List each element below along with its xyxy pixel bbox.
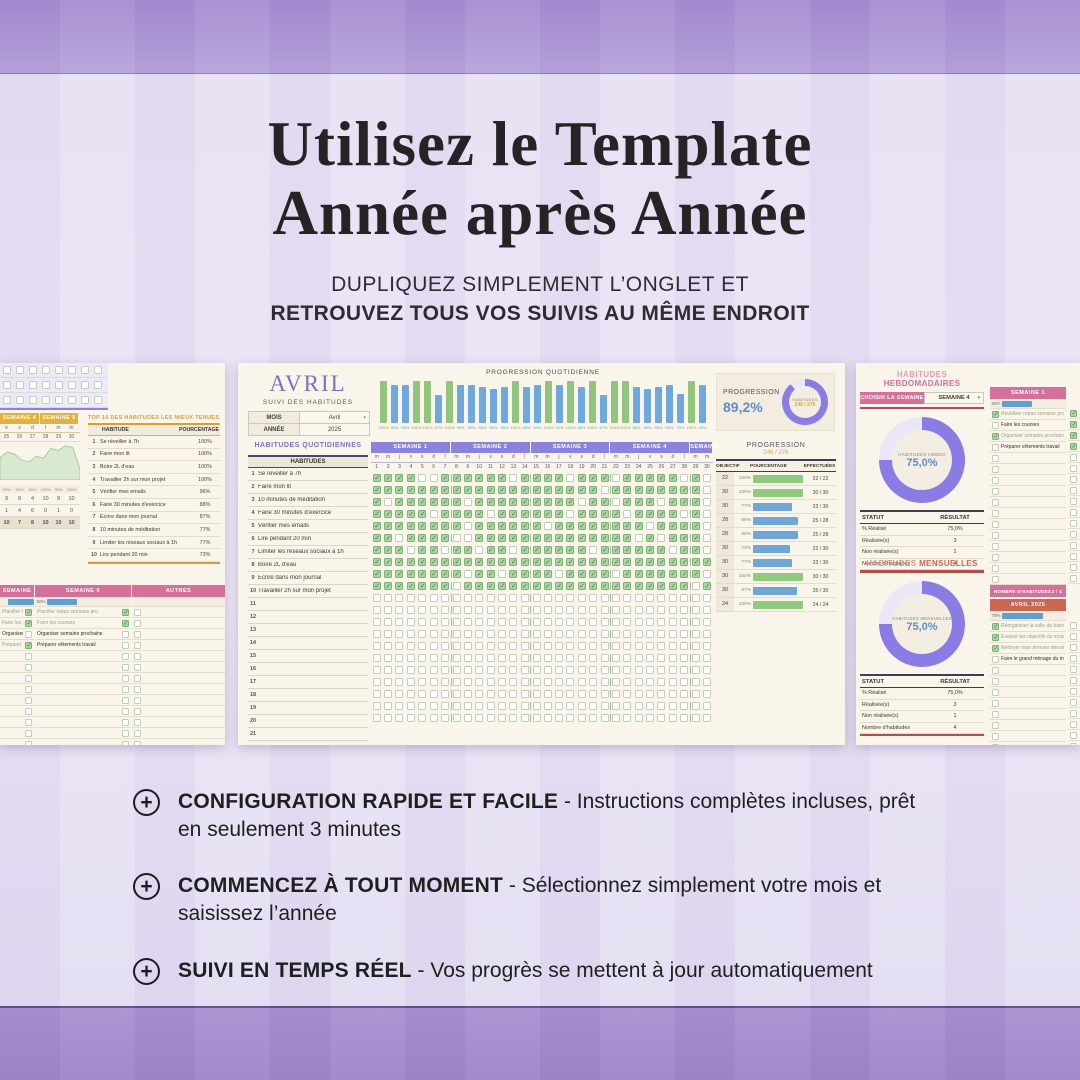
habit-checkbox[interactable] bbox=[669, 618, 677, 626]
habit-checkbox[interactable] bbox=[533, 534, 541, 542]
habit-checkbox[interactable] bbox=[589, 642, 597, 650]
habit-checkbox[interactable] bbox=[646, 474, 654, 482]
habit-checkbox[interactable] bbox=[669, 474, 677, 482]
habit-checkbox[interactable] bbox=[521, 594, 529, 602]
habit-checkbox[interactable] bbox=[384, 690, 392, 698]
habit-checkbox[interactable] bbox=[475, 690, 483, 698]
habit-checkbox[interactable] bbox=[453, 510, 461, 518]
habit-checkbox[interactable] bbox=[612, 522, 620, 530]
habit-checkbox[interactable] bbox=[373, 570, 381, 578]
habit-checkbox[interactable] bbox=[669, 702, 677, 710]
habit-checkbox[interactable] bbox=[635, 582, 643, 590]
habit-checkbox[interactable] bbox=[94, 381, 102, 389]
habit-checkbox[interactable] bbox=[373, 582, 381, 590]
habit-checkbox[interactable] bbox=[566, 594, 574, 602]
habit-checkbox[interactable] bbox=[418, 498, 426, 506]
habit-checkbox[interactable] bbox=[453, 594, 461, 602]
habit-checkbox[interactable] bbox=[487, 594, 495, 602]
habit-checkbox[interactable] bbox=[384, 474, 392, 482]
habit-checkbox[interactable] bbox=[498, 594, 506, 602]
habit-checkbox[interactable] bbox=[395, 678, 403, 686]
habit-checkbox[interactable] bbox=[453, 582, 461, 590]
habit-checkbox[interactable] bbox=[441, 498, 449, 506]
habit-checkbox[interactable] bbox=[555, 510, 563, 518]
habit-checkbox[interactable] bbox=[487, 702, 495, 710]
item-checkbox[interactable] bbox=[1070, 465, 1077, 472]
habit-checkbox[interactable] bbox=[680, 678, 688, 686]
habit-checkbox[interactable] bbox=[498, 714, 506, 722]
habit-checkbox[interactable] bbox=[384, 558, 392, 566]
habit-checkbox[interactable] bbox=[544, 474, 552, 482]
habit-checkbox[interactable] bbox=[509, 594, 517, 602]
habit-checkbox[interactable] bbox=[464, 642, 472, 650]
habit-checkbox[interactable] bbox=[623, 606, 631, 614]
habit-checkbox[interactable] bbox=[68, 381, 76, 389]
habit-checkbox[interactable] bbox=[533, 606, 541, 614]
item-checkbox[interactable] bbox=[134, 653, 141, 660]
habit-checkbox[interactable] bbox=[441, 546, 449, 554]
habit-checkbox[interactable] bbox=[601, 618, 609, 626]
habit-checkbox[interactable] bbox=[418, 486, 426, 494]
habit-checkbox[interactable] bbox=[453, 702, 461, 710]
habit-checkbox[interactable] bbox=[487, 474, 495, 482]
habit-checkbox[interactable] bbox=[680, 498, 688, 506]
habit-checkbox[interactable] bbox=[657, 654, 665, 662]
item-checkbox[interactable] bbox=[992, 733, 999, 740]
habit-checkbox[interactable] bbox=[657, 570, 665, 578]
habit-checkbox[interactable] bbox=[623, 522, 631, 530]
habit-checkbox[interactable] bbox=[533, 510, 541, 518]
habit-checkbox[interactable] bbox=[635, 498, 643, 506]
habit-checkbox[interactable] bbox=[533, 474, 541, 482]
habit-checkbox[interactable] bbox=[498, 606, 506, 614]
item-checkbox[interactable] bbox=[992, 510, 999, 517]
habit-checkbox[interactable] bbox=[566, 570, 574, 578]
habit-checkbox[interactable] bbox=[464, 582, 472, 590]
habit-checkbox[interactable] bbox=[555, 558, 563, 566]
habit-checkbox[interactable] bbox=[578, 714, 586, 722]
habit-checkbox[interactable] bbox=[566, 666, 574, 674]
habit-checkbox[interactable] bbox=[487, 606, 495, 614]
habit-checkbox[interactable] bbox=[692, 654, 700, 662]
habit-checkbox[interactable] bbox=[453, 546, 461, 554]
habit-checkbox[interactable] bbox=[657, 690, 665, 698]
item-checkbox[interactable] bbox=[992, 488, 999, 495]
habit-checkbox[interactable] bbox=[589, 510, 597, 518]
habit-checkbox[interactable] bbox=[464, 678, 472, 686]
habit-checkbox[interactable] bbox=[418, 654, 426, 662]
habit-checkbox[interactable] bbox=[623, 630, 631, 638]
habit-checkbox[interactable] bbox=[657, 534, 665, 542]
habit-checkbox[interactable] bbox=[589, 678, 597, 686]
habit-checkbox[interactable] bbox=[395, 558, 403, 566]
habit-checkbox[interactable] bbox=[703, 714, 711, 722]
habit-checkbox[interactable] bbox=[589, 534, 597, 542]
habit-checkbox[interactable] bbox=[544, 486, 552, 494]
habit-checkbox[interactable] bbox=[589, 498, 597, 506]
habit-checkbox[interactable] bbox=[475, 594, 483, 602]
habit-checkbox[interactable] bbox=[384, 582, 392, 590]
habit-checkbox[interactable] bbox=[464, 534, 472, 542]
habit-checkbox[interactable] bbox=[646, 498, 654, 506]
habit-checkbox[interactable] bbox=[635, 654, 643, 662]
habit-checkbox[interactable] bbox=[566, 474, 574, 482]
habit-checkbox[interactable] bbox=[384, 606, 392, 614]
habit-checkbox[interactable] bbox=[589, 702, 597, 710]
item-checkbox[interactable] bbox=[1070, 553, 1077, 560]
habit-checkbox[interactable] bbox=[509, 558, 517, 566]
habit-checkbox[interactable] bbox=[498, 486, 506, 494]
habit-checkbox[interactable] bbox=[578, 606, 586, 614]
habit-checkbox[interactable] bbox=[703, 546, 711, 554]
habit-checkbox[interactable] bbox=[395, 666, 403, 674]
habit-checkbox[interactable] bbox=[521, 522, 529, 530]
habit-checkbox[interactable] bbox=[68, 396, 76, 404]
habit-checkbox[interactable] bbox=[42, 381, 50, 389]
habit-checkbox[interactable] bbox=[680, 606, 688, 614]
habit-checkbox[interactable] bbox=[646, 702, 654, 710]
habit-checkbox[interactable] bbox=[441, 594, 449, 602]
choose-week-button[interactable]: CHOISIR LA SEMAINE bbox=[860, 392, 924, 404]
habit-checkbox[interactable] bbox=[464, 702, 472, 710]
item-checkbox[interactable] bbox=[122, 730, 129, 737]
habit-checkbox[interactable] bbox=[509, 606, 517, 614]
habit-checkbox[interactable] bbox=[498, 546, 506, 554]
item-checkbox[interactable] bbox=[992, 744, 999, 746]
habit-checkbox[interactable] bbox=[384, 594, 392, 602]
habit-checkbox[interactable] bbox=[566, 582, 574, 590]
habit-checkbox[interactable] bbox=[589, 546, 597, 554]
item-checkbox[interactable] bbox=[134, 675, 141, 682]
habit-checkbox[interactable] bbox=[692, 546, 700, 554]
habit-checkbox[interactable] bbox=[589, 606, 597, 614]
item-checkbox[interactable] bbox=[992, 532, 999, 539]
habit-checkbox[interactable] bbox=[680, 594, 688, 602]
habit-checkbox[interactable] bbox=[692, 618, 700, 626]
item-checkbox[interactable] bbox=[1070, 531, 1077, 538]
item-checkbox[interactable] bbox=[134, 664, 141, 671]
habit-checkbox[interactable] bbox=[578, 630, 586, 638]
habit-checkbox[interactable] bbox=[373, 498, 381, 506]
habit-checkbox[interactable] bbox=[635, 558, 643, 566]
habit-checkbox[interactable] bbox=[395, 570, 403, 578]
item-checkbox[interactable] bbox=[1070, 432, 1077, 439]
habit-checkbox[interactable] bbox=[430, 570, 438, 578]
habit-checkbox[interactable] bbox=[487, 570, 495, 578]
habit-checkbox[interactable] bbox=[3, 396, 11, 404]
habit-checkbox[interactable] bbox=[544, 510, 552, 518]
habit-checkbox[interactable] bbox=[623, 678, 631, 686]
habit-checkbox[interactable] bbox=[407, 534, 415, 542]
habit-checkbox[interactable] bbox=[657, 714, 665, 722]
habit-checkbox[interactable] bbox=[430, 618, 438, 626]
habit-checkbox[interactable] bbox=[533, 594, 541, 602]
habit-checkbox[interactable] bbox=[453, 618, 461, 626]
habit-checkbox[interactable] bbox=[623, 702, 631, 710]
item-checkbox[interactable] bbox=[122, 620, 129, 627]
habit-checkbox[interactable] bbox=[533, 690, 541, 698]
habit-checkbox[interactable] bbox=[509, 618, 517, 626]
habit-checkbox[interactable] bbox=[680, 714, 688, 722]
habit-checkbox[interactable] bbox=[533, 498, 541, 506]
habit-checkbox[interactable] bbox=[430, 522, 438, 530]
habit-checkbox[interactable] bbox=[509, 702, 517, 710]
habit-checkbox[interactable] bbox=[441, 666, 449, 674]
habit-checkbox[interactable] bbox=[430, 474, 438, 482]
habit-checkbox[interactable] bbox=[692, 642, 700, 650]
habit-checkbox[interactable] bbox=[692, 558, 700, 566]
habit-checkbox[interactable] bbox=[453, 498, 461, 506]
habit-checkbox[interactable] bbox=[533, 702, 541, 710]
habit-checkbox[interactable] bbox=[635, 486, 643, 494]
habit-checkbox[interactable] bbox=[601, 486, 609, 494]
habit-checkbox[interactable] bbox=[81, 396, 89, 404]
habit-checkbox[interactable] bbox=[680, 558, 688, 566]
habit-checkbox[interactable] bbox=[55, 381, 63, 389]
habit-checkbox[interactable] bbox=[475, 642, 483, 650]
habit-checkbox[interactable] bbox=[464, 510, 472, 518]
habit-checkbox[interactable] bbox=[657, 642, 665, 650]
habit-checkbox[interactable] bbox=[601, 594, 609, 602]
habit-checkbox[interactable] bbox=[509, 642, 517, 650]
habit-checkbox[interactable] bbox=[555, 570, 563, 578]
habit-checkbox[interactable] bbox=[430, 678, 438, 686]
habit-checkbox[interactable] bbox=[692, 690, 700, 698]
habit-checkbox[interactable] bbox=[555, 642, 563, 650]
habit-checkbox[interactable] bbox=[578, 666, 586, 674]
habit-checkbox[interactable] bbox=[680, 534, 688, 542]
habit-checkbox[interactable] bbox=[475, 570, 483, 578]
habit-checkbox[interactable] bbox=[475, 654, 483, 662]
habit-checkbox[interactable] bbox=[601, 606, 609, 614]
habit-checkbox[interactable] bbox=[555, 486, 563, 494]
habit-checkbox[interactable] bbox=[498, 618, 506, 626]
habit-checkbox[interactable] bbox=[612, 534, 620, 542]
habit-checkbox[interactable] bbox=[418, 546, 426, 554]
habit-checkbox[interactable] bbox=[612, 558, 620, 566]
habit-checkbox[interactable] bbox=[680, 702, 688, 710]
habit-checkbox[interactable] bbox=[601, 498, 609, 506]
habit-checkbox[interactable] bbox=[464, 630, 472, 638]
habit-checkbox[interactable] bbox=[635, 570, 643, 578]
item-checkbox[interactable] bbox=[992, 565, 999, 572]
habit-checkbox[interactable] bbox=[566, 678, 574, 686]
habit-checkbox[interactable] bbox=[509, 666, 517, 674]
habit-checkbox[interactable] bbox=[544, 702, 552, 710]
habit-checkbox[interactable] bbox=[487, 546, 495, 554]
habit-checkbox[interactable] bbox=[475, 618, 483, 626]
habit-checkbox[interactable] bbox=[441, 570, 449, 578]
habit-checkbox[interactable] bbox=[509, 690, 517, 698]
habit-checkbox[interactable] bbox=[441, 522, 449, 530]
habit-checkbox[interactable] bbox=[487, 510, 495, 518]
habit-checkbox[interactable] bbox=[453, 666, 461, 674]
habit-checkbox[interactable] bbox=[407, 510, 415, 518]
habit-checkbox[interactable] bbox=[521, 714, 529, 722]
habit-checkbox[interactable] bbox=[589, 558, 597, 566]
habit-checkbox[interactable] bbox=[555, 678, 563, 686]
item-checkbox[interactable] bbox=[134, 609, 141, 616]
habit-checkbox[interactable] bbox=[544, 594, 552, 602]
item-checkbox[interactable] bbox=[134, 631, 141, 638]
habit-checkbox[interactable] bbox=[680, 666, 688, 674]
habit-checkbox[interactable] bbox=[487, 690, 495, 698]
item-checkbox[interactable] bbox=[25, 664, 32, 671]
habit-checkbox[interactable] bbox=[498, 690, 506, 698]
habit-checkbox[interactable] bbox=[612, 486, 620, 494]
habit-checkbox[interactable] bbox=[646, 714, 654, 722]
habit-checkbox[interactable] bbox=[441, 678, 449, 686]
habit-checkbox[interactable] bbox=[475, 702, 483, 710]
annee-input[interactable]: 2025 bbox=[300, 424, 369, 435]
item-checkbox[interactable] bbox=[1070, 542, 1077, 549]
habit-checkbox[interactable] bbox=[680, 570, 688, 578]
habit-checkbox[interactable] bbox=[441, 582, 449, 590]
habit-checkbox[interactable] bbox=[544, 690, 552, 698]
habit-checkbox[interactable] bbox=[612, 606, 620, 614]
habit-checkbox[interactable] bbox=[533, 570, 541, 578]
habit-checkbox[interactable] bbox=[544, 498, 552, 506]
habit-checkbox[interactable] bbox=[544, 642, 552, 650]
habit-checkbox[interactable] bbox=[646, 594, 654, 602]
item-checkbox[interactable] bbox=[25, 642, 32, 649]
habit-checkbox[interactable] bbox=[692, 570, 700, 578]
habit-checkbox[interactable] bbox=[418, 594, 426, 602]
item-checkbox[interactable] bbox=[134, 741, 141, 746]
habit-checkbox[interactable] bbox=[16, 396, 24, 404]
habit-checkbox[interactable] bbox=[498, 498, 506, 506]
habit-checkbox[interactable] bbox=[521, 690, 529, 698]
habit-checkbox[interactable] bbox=[498, 642, 506, 650]
habit-checkbox[interactable] bbox=[521, 618, 529, 626]
habit-checkbox[interactable] bbox=[669, 510, 677, 518]
item-checkbox[interactable] bbox=[122, 686, 129, 693]
habit-checkbox[interactable] bbox=[669, 558, 677, 566]
habit-checkbox[interactable] bbox=[589, 618, 597, 626]
habit-checkbox[interactable] bbox=[29, 366, 37, 374]
habit-checkbox[interactable] bbox=[384, 642, 392, 650]
habit-checkbox[interactable] bbox=[544, 558, 552, 566]
habit-checkbox[interactable] bbox=[487, 486, 495, 494]
habit-checkbox[interactable] bbox=[646, 666, 654, 674]
habit-checkbox[interactable] bbox=[680, 582, 688, 590]
habit-checkbox[interactable] bbox=[555, 534, 563, 542]
habit-checkbox[interactable] bbox=[384, 522, 392, 530]
item-checkbox[interactable] bbox=[122, 631, 129, 638]
habit-checkbox[interactable] bbox=[441, 510, 449, 518]
habit-checkbox[interactable] bbox=[407, 582, 415, 590]
habit-checkbox[interactable] bbox=[646, 522, 654, 530]
item-checkbox[interactable] bbox=[992, 711, 999, 718]
item-checkbox[interactable] bbox=[1070, 688, 1077, 695]
item-checkbox[interactable] bbox=[134, 697, 141, 704]
habit-checkbox[interactable] bbox=[521, 546, 529, 554]
habit-checkbox[interactable] bbox=[646, 534, 654, 542]
habit-checkbox[interactable] bbox=[555, 630, 563, 638]
habit-checkbox[interactable] bbox=[498, 654, 506, 662]
habit-checkbox[interactable] bbox=[601, 558, 609, 566]
habit-checkbox[interactable] bbox=[692, 582, 700, 590]
item-checkbox[interactable] bbox=[122, 741, 129, 746]
habit-checkbox[interactable] bbox=[464, 498, 472, 506]
habit-checkbox[interactable] bbox=[623, 558, 631, 566]
habit-checkbox[interactable] bbox=[601, 474, 609, 482]
habit-checkbox[interactable] bbox=[384, 678, 392, 686]
habit-checkbox[interactable] bbox=[646, 606, 654, 614]
habit-checkbox[interactable] bbox=[487, 522, 495, 530]
habit-checkbox[interactable] bbox=[669, 714, 677, 722]
habit-checkbox[interactable] bbox=[453, 558, 461, 566]
habit-checkbox[interactable] bbox=[578, 702, 586, 710]
habit-checkbox[interactable] bbox=[601, 534, 609, 542]
habit-checkbox[interactable] bbox=[533, 714, 541, 722]
habit-checkbox[interactable] bbox=[623, 654, 631, 662]
habit-checkbox[interactable] bbox=[566, 618, 574, 626]
habit-checkbox[interactable] bbox=[623, 618, 631, 626]
item-checkbox[interactable] bbox=[992, 623, 999, 630]
habit-checkbox[interactable] bbox=[373, 606, 381, 614]
habit-checkbox[interactable] bbox=[464, 570, 472, 578]
habit-checkbox[interactable] bbox=[509, 534, 517, 542]
habit-checkbox[interactable] bbox=[441, 474, 449, 482]
item-checkbox[interactable] bbox=[992, 634, 999, 641]
habit-checkbox[interactable] bbox=[669, 582, 677, 590]
habit-checkbox[interactable] bbox=[533, 630, 541, 638]
habit-checkbox[interactable] bbox=[384, 702, 392, 710]
habit-checkbox[interactable] bbox=[635, 630, 643, 638]
item-checkbox[interactable] bbox=[25, 620, 32, 627]
item-checkbox[interactable] bbox=[122, 664, 129, 671]
habit-checkbox[interactable] bbox=[521, 642, 529, 650]
habit-checkbox[interactable] bbox=[601, 570, 609, 578]
habit-checkbox[interactable] bbox=[589, 486, 597, 494]
habit-checkbox[interactable] bbox=[498, 630, 506, 638]
habit-checkbox[interactable] bbox=[669, 654, 677, 662]
habit-checkbox[interactable] bbox=[544, 582, 552, 590]
habit-checkbox[interactable] bbox=[487, 630, 495, 638]
habit-checkbox[interactable] bbox=[487, 582, 495, 590]
habit-checkbox[interactable] bbox=[623, 486, 631, 494]
habit-checkbox[interactable] bbox=[498, 522, 506, 530]
habit-checkbox[interactable] bbox=[680, 546, 688, 554]
item-checkbox[interactable] bbox=[1070, 575, 1077, 582]
habit-checkbox[interactable] bbox=[373, 714, 381, 722]
habit-checkbox[interactable] bbox=[475, 582, 483, 590]
habit-checkbox[interactable] bbox=[578, 534, 586, 542]
habit-checkbox[interactable] bbox=[521, 678, 529, 686]
item-checkbox[interactable] bbox=[992, 678, 999, 685]
habit-checkbox[interactable] bbox=[498, 570, 506, 578]
habit-checkbox[interactable] bbox=[395, 702, 403, 710]
item-checkbox[interactable] bbox=[134, 620, 141, 627]
habit-checkbox[interactable] bbox=[475, 714, 483, 722]
habit-checkbox[interactable] bbox=[395, 498, 403, 506]
habit-checkbox[interactable] bbox=[395, 546, 403, 554]
habit-checkbox[interactable] bbox=[475, 606, 483, 614]
habit-checkbox[interactable] bbox=[418, 558, 426, 566]
habit-checkbox[interactable] bbox=[555, 714, 563, 722]
habit-checkbox[interactable] bbox=[475, 498, 483, 506]
habit-checkbox[interactable] bbox=[601, 678, 609, 686]
habit-checkbox[interactable] bbox=[509, 654, 517, 662]
habit-checkbox[interactable] bbox=[42, 366, 50, 374]
item-checkbox[interactable] bbox=[992, 645, 999, 652]
habit-checkbox[interactable] bbox=[612, 714, 620, 722]
habit-checkbox[interactable] bbox=[578, 642, 586, 650]
habit-checkbox[interactable] bbox=[657, 678, 665, 686]
habit-checkbox[interactable] bbox=[418, 630, 426, 638]
habit-checkbox[interactable] bbox=[384, 570, 392, 578]
